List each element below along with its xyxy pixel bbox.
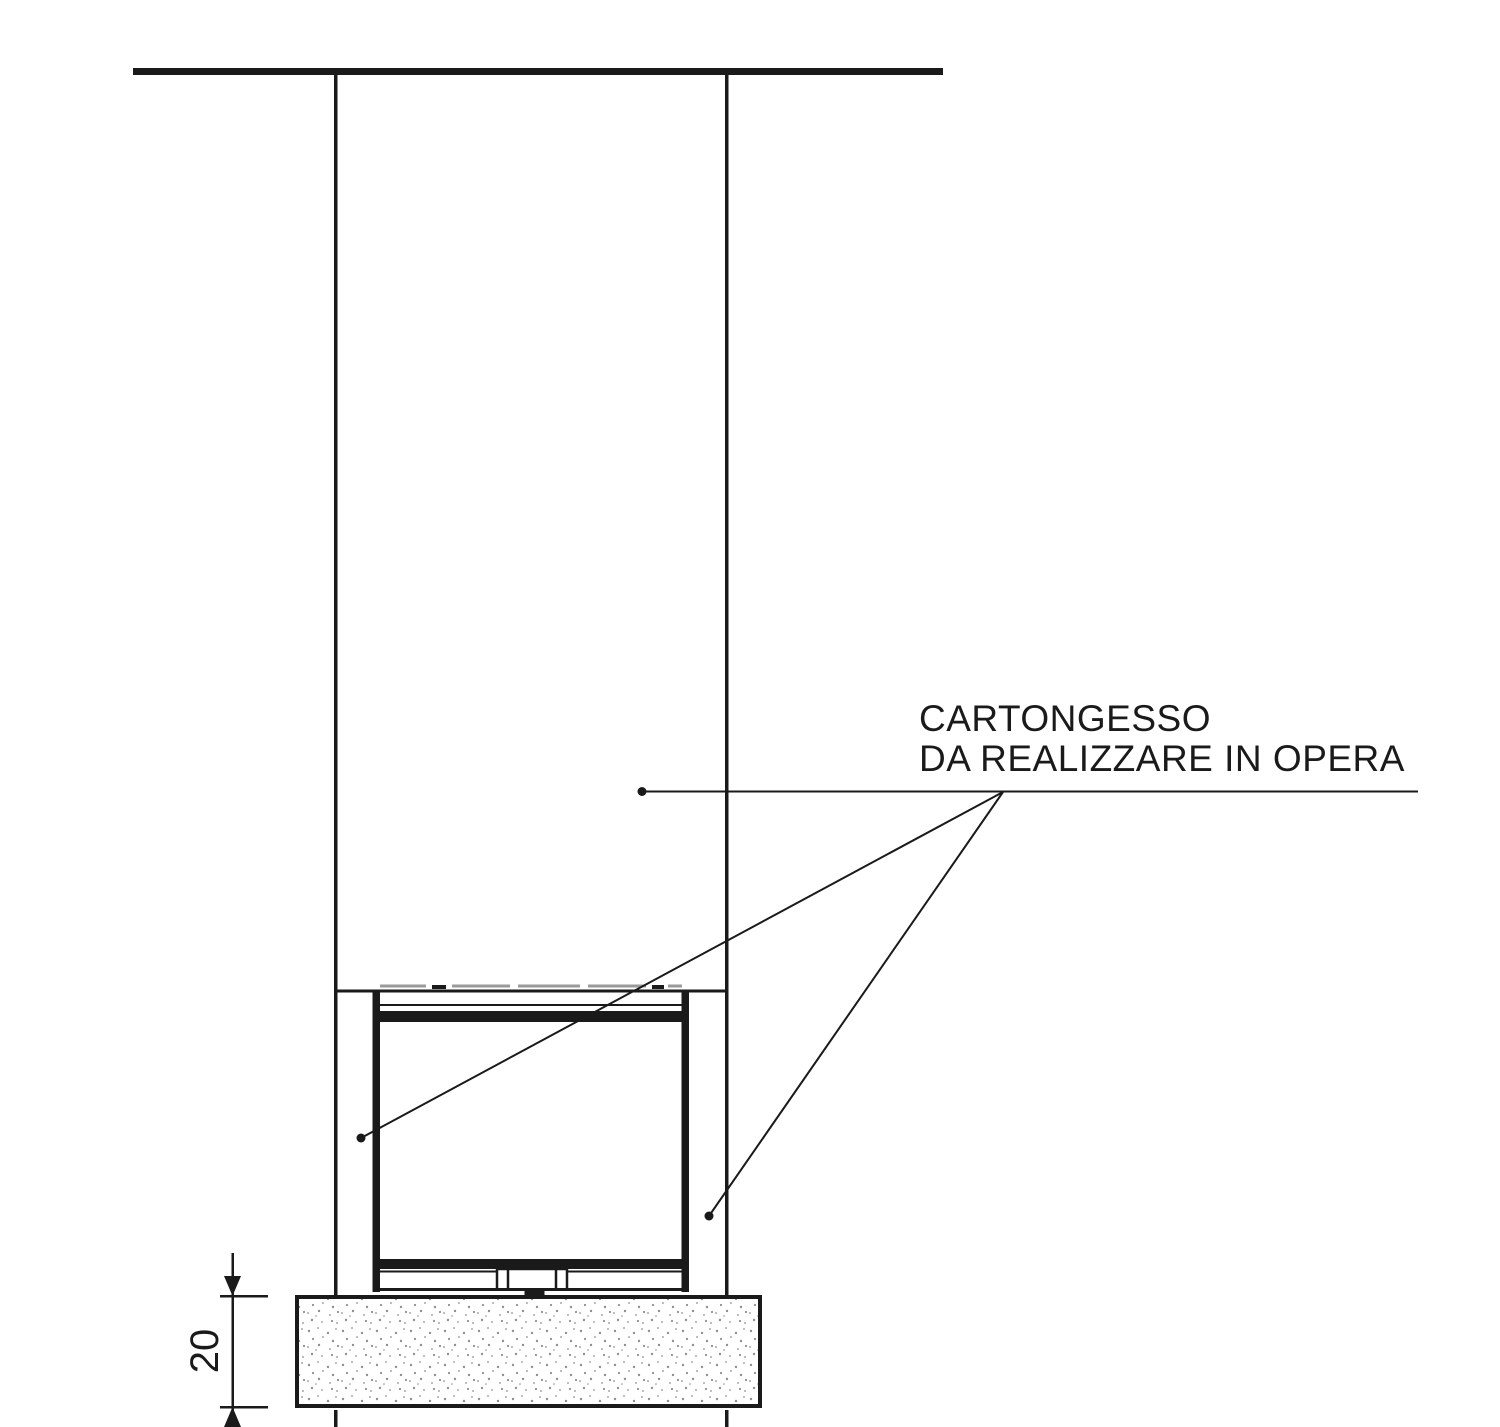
leader-dot-left-jamb — [357, 1134, 366, 1143]
profile-dash — [668, 985, 682, 988]
firebox-top-thin-line — [380, 1004, 682, 1006]
profile-dash — [588, 985, 646, 988]
hearth-base — [297, 1297, 760, 1406]
firebox-bottom-bar — [380, 1259, 682, 1269]
firebox-left-wall — [373, 990, 381, 1292]
profile-clip — [432, 985, 446, 989]
right-wall-stub-line — [725, 1410, 729, 1427]
annotation-cartongesso: CARTONGESSO DA REALIZZARE IN OPERA — [919, 699, 1405, 779]
ceiling-line — [133, 68, 943, 75]
annotation-line-2: DA REALIZZARE IN OPERA — [919, 739, 1405, 779]
annotation-line-1: CARTONGESSO — [919, 699, 1405, 739]
dimension-20: 20 — [183, 1253, 268, 1427]
profile-clip — [652, 985, 664, 989]
dimension-tick-bottom — [220, 1406, 268, 1409]
firebox-base-tab — [525, 1291, 545, 1296]
technical-drawing-canvas: 20 CARTONGESSO DA REALIZZARE IN OPERA — [0, 0, 1500, 1427]
leader-dot-chimney-breast — [638, 787, 647, 796]
profile-dash — [518, 985, 580, 988]
dimension-arrow-down-icon — [224, 1276, 241, 1296]
lintel-shelf-line — [336, 990, 728, 993]
dimension-arrow-up-icon — [224, 1407, 241, 1427]
dimension-tick-top — [220, 1295, 268, 1298]
profile-dash — [380, 985, 426, 988]
left-wall-outer-line — [334, 75, 338, 1295]
dimension-value: 20 — [183, 1329, 227, 1374]
leader-lines — [357, 787, 1419, 1221]
right-wall-outer-line — [725, 75, 729, 1295]
profile-dash — [452, 985, 510, 988]
firebox-right-wall — [682, 990, 690, 1292]
left-wall-stub-line — [334, 1410, 338, 1427]
leader-diagonal-right — [709, 792, 1003, 1216]
leader-dot-right-jamb — [705, 1212, 714, 1221]
firebox-top-bar — [380, 1011, 682, 1022]
